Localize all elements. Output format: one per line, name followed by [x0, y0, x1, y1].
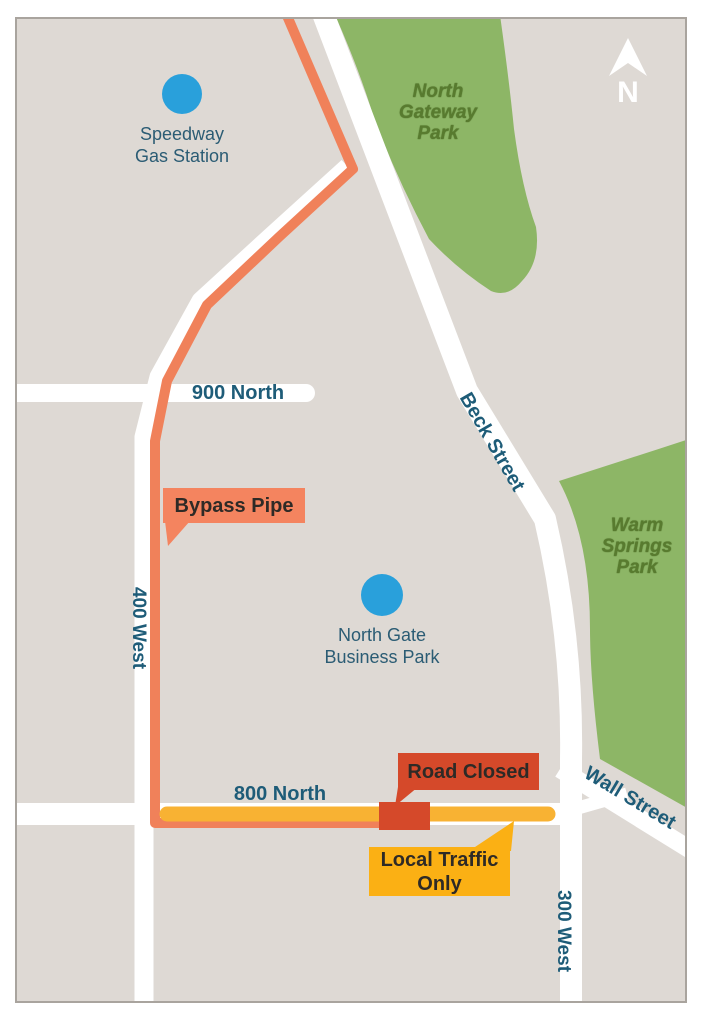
north-gate-poi-label: North Gate Business Park: [302, 624, 462, 668]
local-traffic-callout: Local Traffic Only: [369, 847, 510, 896]
map-canvas: N Speedway Gas Station North Gate Busine…: [15, 17, 687, 1003]
street-label-300-west: 300 West: [552, 851, 574, 1003]
warm-springs-park-label: Warm Springs Park: [567, 515, 687, 578]
speedway-poi-marker: [162, 74, 202, 114]
street-label-400-west: 400 West: [127, 548, 149, 708]
bypass-pipe-callout: Bypass Pipe: [163, 488, 305, 523]
speedway-poi-label: Speedway Gas Station: [102, 123, 262, 167]
road-closed-callout: Road Closed: [398, 753, 539, 790]
north-gateway-park-label: North Gateway Park: [368, 81, 508, 144]
north-gate-poi-marker: [361, 574, 403, 616]
road-closure-map-page: { "map": { "background": "#DED9D4", "bor…: [0, 0, 704, 1024]
street-label-800-north: 800 North: [205, 783, 355, 805]
street-label-900-north: 900 North: [163, 382, 313, 404]
